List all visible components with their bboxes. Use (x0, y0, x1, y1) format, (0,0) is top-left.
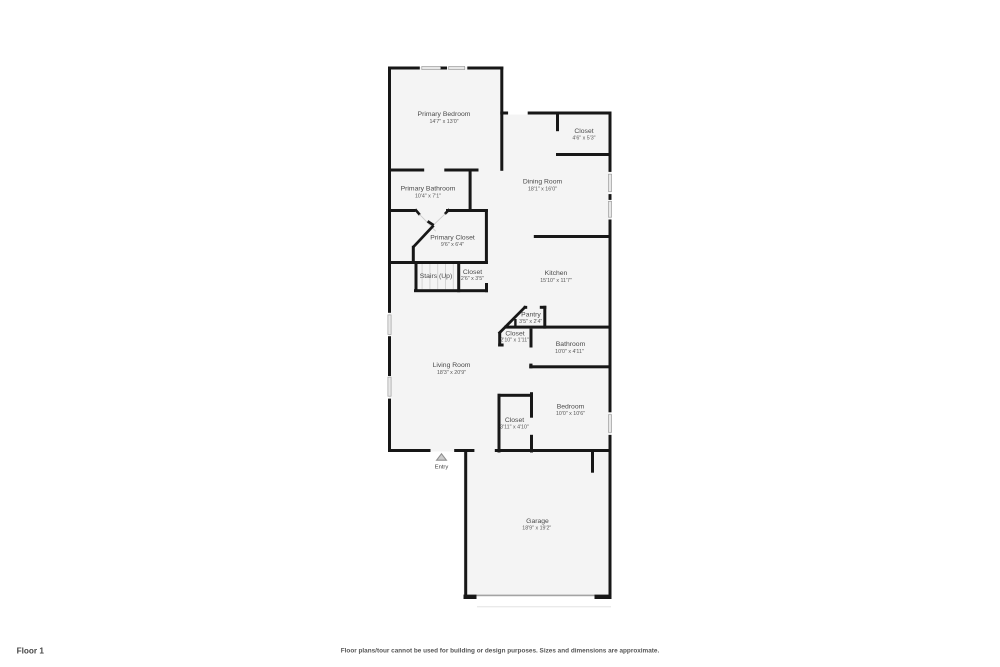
svg-text:Floor plans/tour cannot be use: Floor plans/tour cannot be used for buil… (341, 648, 660, 655)
svg-text:9'6" x 6'4": 9'6" x 6'4" (441, 242, 464, 248)
svg-text:Entry: Entry (435, 465, 449, 471)
svg-text:Bedroom: Bedroom (557, 404, 585, 411)
svg-text:2'10" x 1'11": 2'10" x 1'11" (500, 338, 529, 344)
svg-text:Closet: Closet (505, 417, 524, 424)
svg-text:10'4" x 7'1": 10'4" x 7'1" (415, 193, 441, 199)
svg-text:18'3" x 20'9": 18'3" x 20'9" (437, 370, 466, 376)
svg-text:Living Room: Living Room (433, 362, 471, 369)
svg-text:Primary Closet: Primary Closet (430, 234, 475, 241)
svg-text:Dining Room: Dining Room (523, 179, 563, 186)
svg-text:Primary Bathroom: Primary Bathroom (401, 185, 456, 192)
svg-text:14'7" x 13'0": 14'7" x 13'0" (429, 119, 458, 125)
svg-text:3'5" x 2'4": 3'5" x 2'4" (519, 319, 542, 325)
svg-text:Bathroom: Bathroom (556, 341, 586, 348)
svg-text:2'6" x 3'5": 2'6" x 3'5" (461, 276, 484, 282)
svg-text:Pantry: Pantry (521, 312, 541, 319)
svg-text:3'11" x 4'10": 3'11" x 4'10" (500, 424, 529, 430)
svg-text:18'1" x 16'0": 18'1" x 16'0" (528, 187, 557, 193)
svg-text:Closet: Closet (505, 330, 524, 337)
svg-text:Primary Bedroom: Primary Bedroom (418, 111, 471, 118)
svg-text:Stairs (Up): Stairs (Up) (420, 273, 452, 280)
svg-text:Floor 1: Floor 1 (17, 647, 45, 656)
svg-text:15'10" x 11'7": 15'10" x 11'7" (540, 278, 572, 284)
svg-text:10'0" x 4'11": 10'0" x 4'11" (555, 349, 584, 355)
svg-text:18'9" x 19'2": 18'9" x 19'2" (522, 525, 551, 531)
svg-text:Kitchen: Kitchen (545, 270, 568, 277)
svg-text:Garage: Garage (526, 518, 549, 525)
svg-text:Closet: Closet (463, 269, 482, 276)
svg-text:10'0" x 10'6": 10'0" x 10'6" (556, 411, 585, 417)
svg-text:Closet: Closet (574, 128, 593, 135)
svg-text:4'6" x 5'3": 4'6" x 5'3" (572, 135, 595, 141)
